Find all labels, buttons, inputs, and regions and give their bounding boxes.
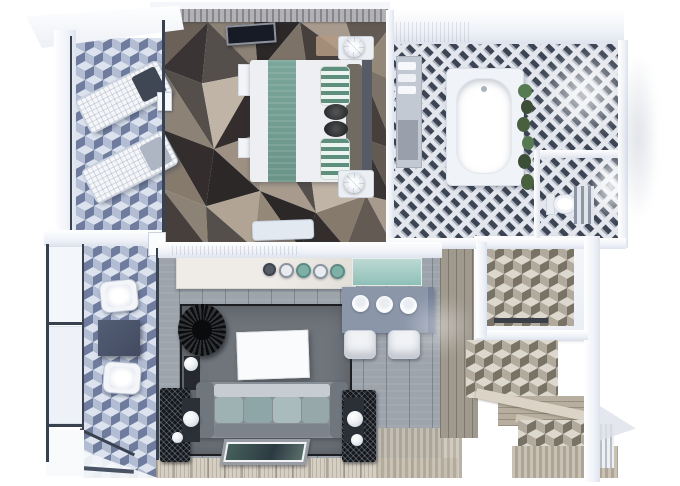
glass-panel-1	[48, 246, 84, 324]
rattan-chair-seat	[192, 320, 211, 341]
dining-chair-1	[344, 330, 376, 359]
bolster-cushion-1	[324, 104, 348, 120]
sofa-cushion-4	[302, 397, 329, 423]
railing-frame-inner	[82, 244, 84, 430]
bed-headboard	[362, 56, 372, 186]
roof-strip-bedroom	[150, 2, 390, 9]
bolster-cushion-2	[324, 121, 348, 137]
railing-divider-1	[46, 322, 84, 325]
framed-picture	[220, 439, 311, 465]
glass-panel-2	[48, 326, 84, 424]
bowl-2	[376, 296, 393, 313]
faucet-knob-4	[330, 264, 345, 279]
barrel-chair-2	[102, 361, 142, 396]
closet-bench	[494, 318, 548, 323]
faucet-knob-1	[279, 263, 294, 278]
mid-beam	[44, 230, 162, 246]
railing-divider-2	[46, 424, 84, 427]
barrel-chair-2-seat	[108, 366, 135, 390]
towel-3	[398, 86, 416, 94]
wc-wall-vertical	[534, 150, 540, 246]
vanity-lower-shelf	[398, 120, 418, 160]
towel-2	[398, 74, 416, 82]
glass-splashback	[352, 258, 422, 286]
coffee-table	[236, 330, 310, 380]
plant-leaf	[518, 154, 531, 169]
entry-right-wall	[584, 236, 600, 482]
railing-lower-balcony-right	[156, 248, 159, 460]
railing-upper-balcony-right	[162, 20, 165, 236]
plant-leaf	[521, 174, 534, 190]
lounge-chair-2-cushion	[139, 136, 173, 172]
floorplan-render	[0, 0, 680, 486]
plant-leaf	[518, 84, 532, 98]
foot-bench	[252, 219, 315, 241]
barrel-chair-1-seat	[105, 284, 133, 309]
plant-leaf	[517, 117, 530, 132]
sphere-lamp-left	[183, 411, 199, 427]
sofa-seat-edge	[214, 384, 330, 397]
table-lamp-top	[344, 37, 364, 57]
bed-runner	[268, 60, 296, 182]
bathtub-drain	[481, 86, 487, 92]
bedroom-bathroom-wall	[386, 10, 394, 246]
sofa-cushion-1	[215, 397, 243, 423]
entry-cube-strip	[518, 420, 584, 448]
tv	[225, 22, 276, 45]
living-room-glare	[404, 296, 474, 356]
bathroom-corner-glare	[540, 48, 630, 138]
sphere-lamp-right-2	[351, 434, 363, 446]
sphere-lamp-left-2	[172, 432, 183, 443]
closet-bottom-wall	[476, 330, 588, 340]
faucet-knob-dark	[263, 263, 276, 276]
luggage-bench	[316, 36, 340, 56]
faucet-knob-2	[296, 263, 311, 278]
table-lamp-bottom	[344, 173, 364, 193]
balcony-square-table	[98, 320, 140, 356]
exterior-shadow-right	[618, 52, 658, 222]
closet-floor	[486, 246, 574, 326]
striped-pillow-top	[320, 66, 350, 106]
glass-panel-3	[46, 430, 84, 476]
sphere-lamp-papasan	[184, 357, 198, 371]
barrel-chair-1	[98, 278, 139, 314]
sofa-cushion-2	[244, 397, 272, 423]
bowl-1	[352, 295, 369, 312]
plant-leaf	[522, 136, 534, 150]
railing-line-left-upper	[70, 36, 72, 234]
picture-image	[226, 444, 305, 460]
sofa-back	[214, 424, 330, 437]
sphere-lamp-right	[347, 411, 363, 427]
rattan-chair	[178, 304, 226, 356]
railing-frame-left	[46, 244, 49, 462]
bath-plant	[516, 84, 536, 194]
bathroom-top-wall-tiles	[392, 22, 472, 42]
faucet-knob-3	[313, 264, 328, 279]
sofa-cushion-3	[273, 397, 301, 423]
towel-1	[398, 62, 416, 70]
bathtub-basin	[456, 78, 512, 174]
plant-leaf	[521, 100, 533, 114]
left-wall-upper	[54, 30, 76, 234]
bedroom-wardrobe	[158, 8, 388, 22]
closet-left-wall	[476, 242, 487, 338]
kitchen-partition-ticks	[172, 246, 300, 255]
